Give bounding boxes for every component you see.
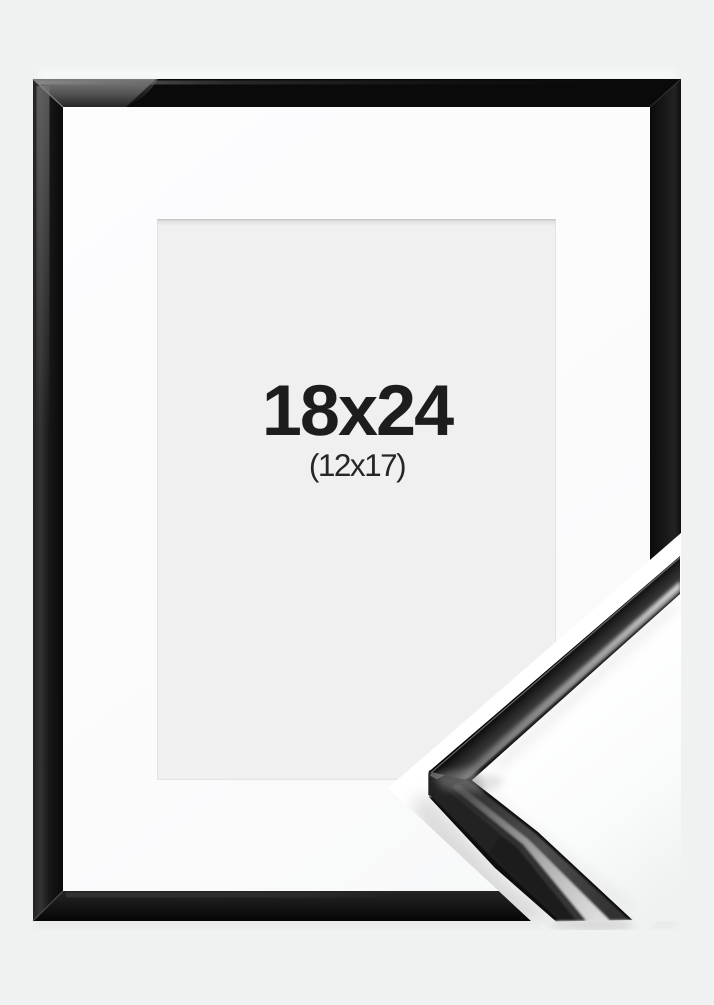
svg-text:(12x17): (12x17) [309,447,405,483]
svg-text:18x24: 18x24 [262,371,454,451]
